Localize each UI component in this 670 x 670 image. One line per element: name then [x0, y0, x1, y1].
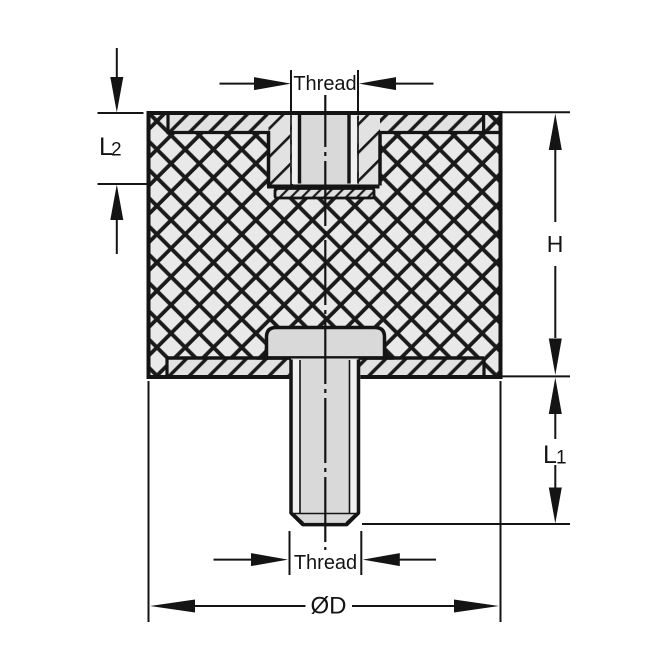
svg-text:2: 2: [111, 140, 122, 161]
svg-text:H: H: [547, 231, 564, 257]
svg-text:Thread: Thread: [294, 552, 357, 574]
svg-text:ØD: ØD: [311, 593, 347, 620]
svg-text:Thread: Thread: [293, 73, 356, 95]
svg-text:1: 1: [556, 448, 567, 469]
svg-text:L: L: [543, 441, 557, 469]
